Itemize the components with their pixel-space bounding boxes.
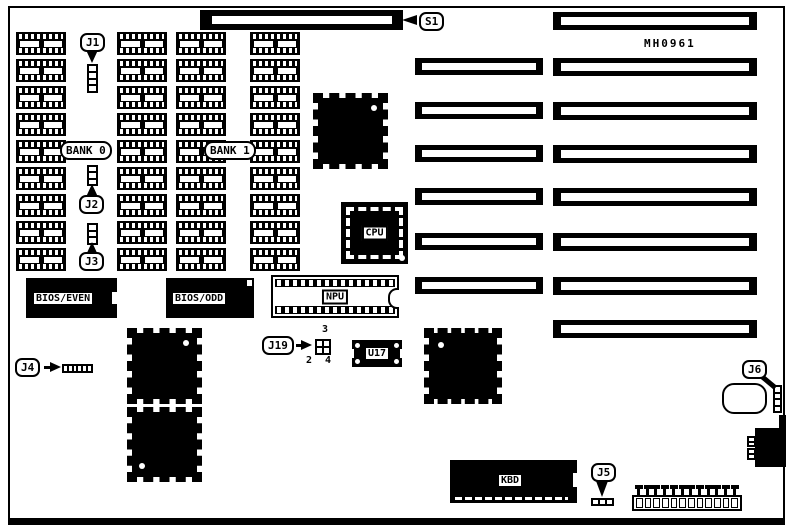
expansion-slot-long [553, 58, 757, 76]
memory-chip-socket [16, 32, 66, 55]
ic-plcc-lower [132, 412, 197, 477]
bios-even-notch [112, 292, 117, 304]
bios-even-chip: BIOS/EVEN [26, 278, 117, 318]
memory-chip-socket [176, 32, 226, 55]
npu-chip: NPU [271, 275, 399, 318]
kbd-connector: KBD [450, 460, 577, 503]
memory-chip-socket [117, 59, 167, 82]
expansion-slot-long [553, 233, 757, 251]
memory-chip-socket [176, 248, 226, 271]
j19-block [315, 339, 331, 355]
tag-j19: J19 [262, 336, 294, 355]
npu-pin-row-top [275, 279, 395, 287]
cpu-label: CPU [361, 226, 387, 241]
kbd-label: KBD [497, 473, 523, 488]
memory-chip-socket [117, 248, 167, 271]
tag-j2: J2 [79, 195, 104, 214]
j4-header [62, 364, 93, 373]
motherboard-diagram: S1 J1 BANK 0 BANK 1 J2 J3 BIOS/EVEN BIOS… [0, 0, 791, 527]
tag-s1: S1 [419, 12, 444, 31]
memory-chip-socket [16, 167, 66, 190]
memory-chip-socket [176, 59, 226, 82]
memory-chip-socket [117, 86, 167, 109]
expansion-slot-short [415, 233, 543, 250]
memory-chip-socket [250, 86, 300, 109]
power-connector-pins [632, 485, 742, 495]
j19-pin2-label: 2 [306, 356, 312, 366]
memory-chip-socket [117, 221, 167, 244]
memory-chip-socket [176, 221, 226, 244]
memory-chip-socket [16, 59, 66, 82]
npu-label: NPU [322, 289, 348, 304]
tag-j3: J3 [79, 252, 104, 271]
power-pin [679, 485, 687, 495]
memory-chip-socket [176, 86, 226, 109]
expansion-slot-long [553, 145, 757, 163]
j6-header [773, 385, 782, 413]
power-pin [661, 485, 669, 495]
memory-chip-socket [117, 140, 167, 163]
expansion-slot-long [553, 188, 757, 206]
power-pin [713, 485, 721, 495]
memory-chip-socket [250, 32, 300, 55]
tag-j1: J1 [80, 33, 105, 52]
ic-plcc-top [318, 98, 383, 164]
j5-header [591, 498, 614, 506]
expansion-slot-short [415, 102, 543, 119]
bios-odd-label: BIOS/ODD [171, 291, 227, 306]
j5-pointer-icon [596, 481, 608, 497]
memory-chip-socket [117, 167, 167, 190]
bios-odd-chip: BIOS/ODD [166, 278, 254, 318]
bank1-label: BANK 1 [204, 141, 256, 160]
tag-j6: J6 [742, 360, 767, 379]
tag-j5: J5 [591, 463, 616, 482]
expansion-slot-long [553, 12, 757, 30]
memory-chip-socket [250, 194, 300, 217]
din-pin-header-1 [747, 436, 756, 447]
power-connector [632, 485, 742, 511]
kbd-notch [573, 473, 577, 487]
memory-chip-socket [176, 167, 226, 190]
tag-j4: J4 [15, 358, 40, 377]
power-pin [687, 485, 695, 495]
battery-outline [722, 383, 767, 414]
bios-odd-notch [247, 280, 252, 286]
ic-plcc-right [429, 333, 497, 399]
memory-chip-socket [176, 113, 226, 136]
expansion-slot-short [415, 145, 543, 162]
u17-label: U17 [364, 346, 390, 361]
memory-chip-socket [16, 221, 66, 244]
power-pin [696, 485, 704, 495]
cpu-pin1-dot [399, 255, 405, 261]
bios-even-label: BIOS/EVEN [32, 291, 94, 306]
power-pin [644, 485, 652, 495]
expansion-slot-long [553, 277, 757, 295]
memory-chip-socket [117, 113, 167, 136]
memory-chip-socket [250, 140, 300, 163]
u17-chip: U17 [352, 340, 402, 367]
din-pin-header-2 [747, 448, 756, 460]
din-connector [755, 428, 786, 467]
expansion-slot-long [553, 320, 757, 338]
s1-pointer-icon [402, 15, 417, 25]
cpu-socket: CPU [341, 202, 408, 264]
memory-chip-socket [250, 167, 300, 190]
j1-header [87, 64, 98, 93]
memory-chip-socket [117, 32, 167, 55]
power-pin [635, 485, 643, 495]
memory-chip-socket [16, 140, 66, 163]
j4-pointer-icon [50, 362, 61, 372]
memory-chip-socket [16, 86, 66, 109]
npu-notch [388, 288, 399, 309]
memory-chip-socket [16, 248, 66, 271]
power-connector-cells [632, 495, 742, 511]
memory-chip-socket [16, 194, 66, 217]
power-pin [670, 485, 678, 495]
j19-pin4-label: 4 [325, 356, 331, 366]
memory-chip-socket [250, 59, 300, 82]
expansion-slot-short [415, 188, 543, 205]
expansion-slot-short [415, 277, 543, 294]
memory-chip-socket [250, 248, 300, 271]
memory-chip-socket [250, 221, 300, 244]
memory-chip-socket [117, 194, 167, 217]
kbd-dashed-line [455, 497, 568, 500]
bank0-label: BANK 0 [60, 141, 112, 160]
npu-pin-row-bottom [275, 306, 395, 314]
memory-chip-socket [176, 194, 226, 217]
power-pin [652, 485, 660, 495]
expansion-slot-short [415, 58, 543, 75]
din-connector-neck [779, 415, 786, 429]
power-pin [722, 485, 730, 495]
j19-pin3-label: 3 [322, 325, 328, 335]
memory-chip-socket [250, 113, 300, 136]
power-pin [705, 485, 713, 495]
power-pin [731, 485, 739, 495]
j19-pointer-icon [301, 340, 312, 350]
part-number-text: MH0961 [644, 37, 696, 50]
memory-chip-socket [16, 113, 66, 136]
expansion-slot-long [553, 102, 757, 120]
j2-header [87, 165, 98, 186]
ic-plcc-mid [132, 333, 197, 399]
